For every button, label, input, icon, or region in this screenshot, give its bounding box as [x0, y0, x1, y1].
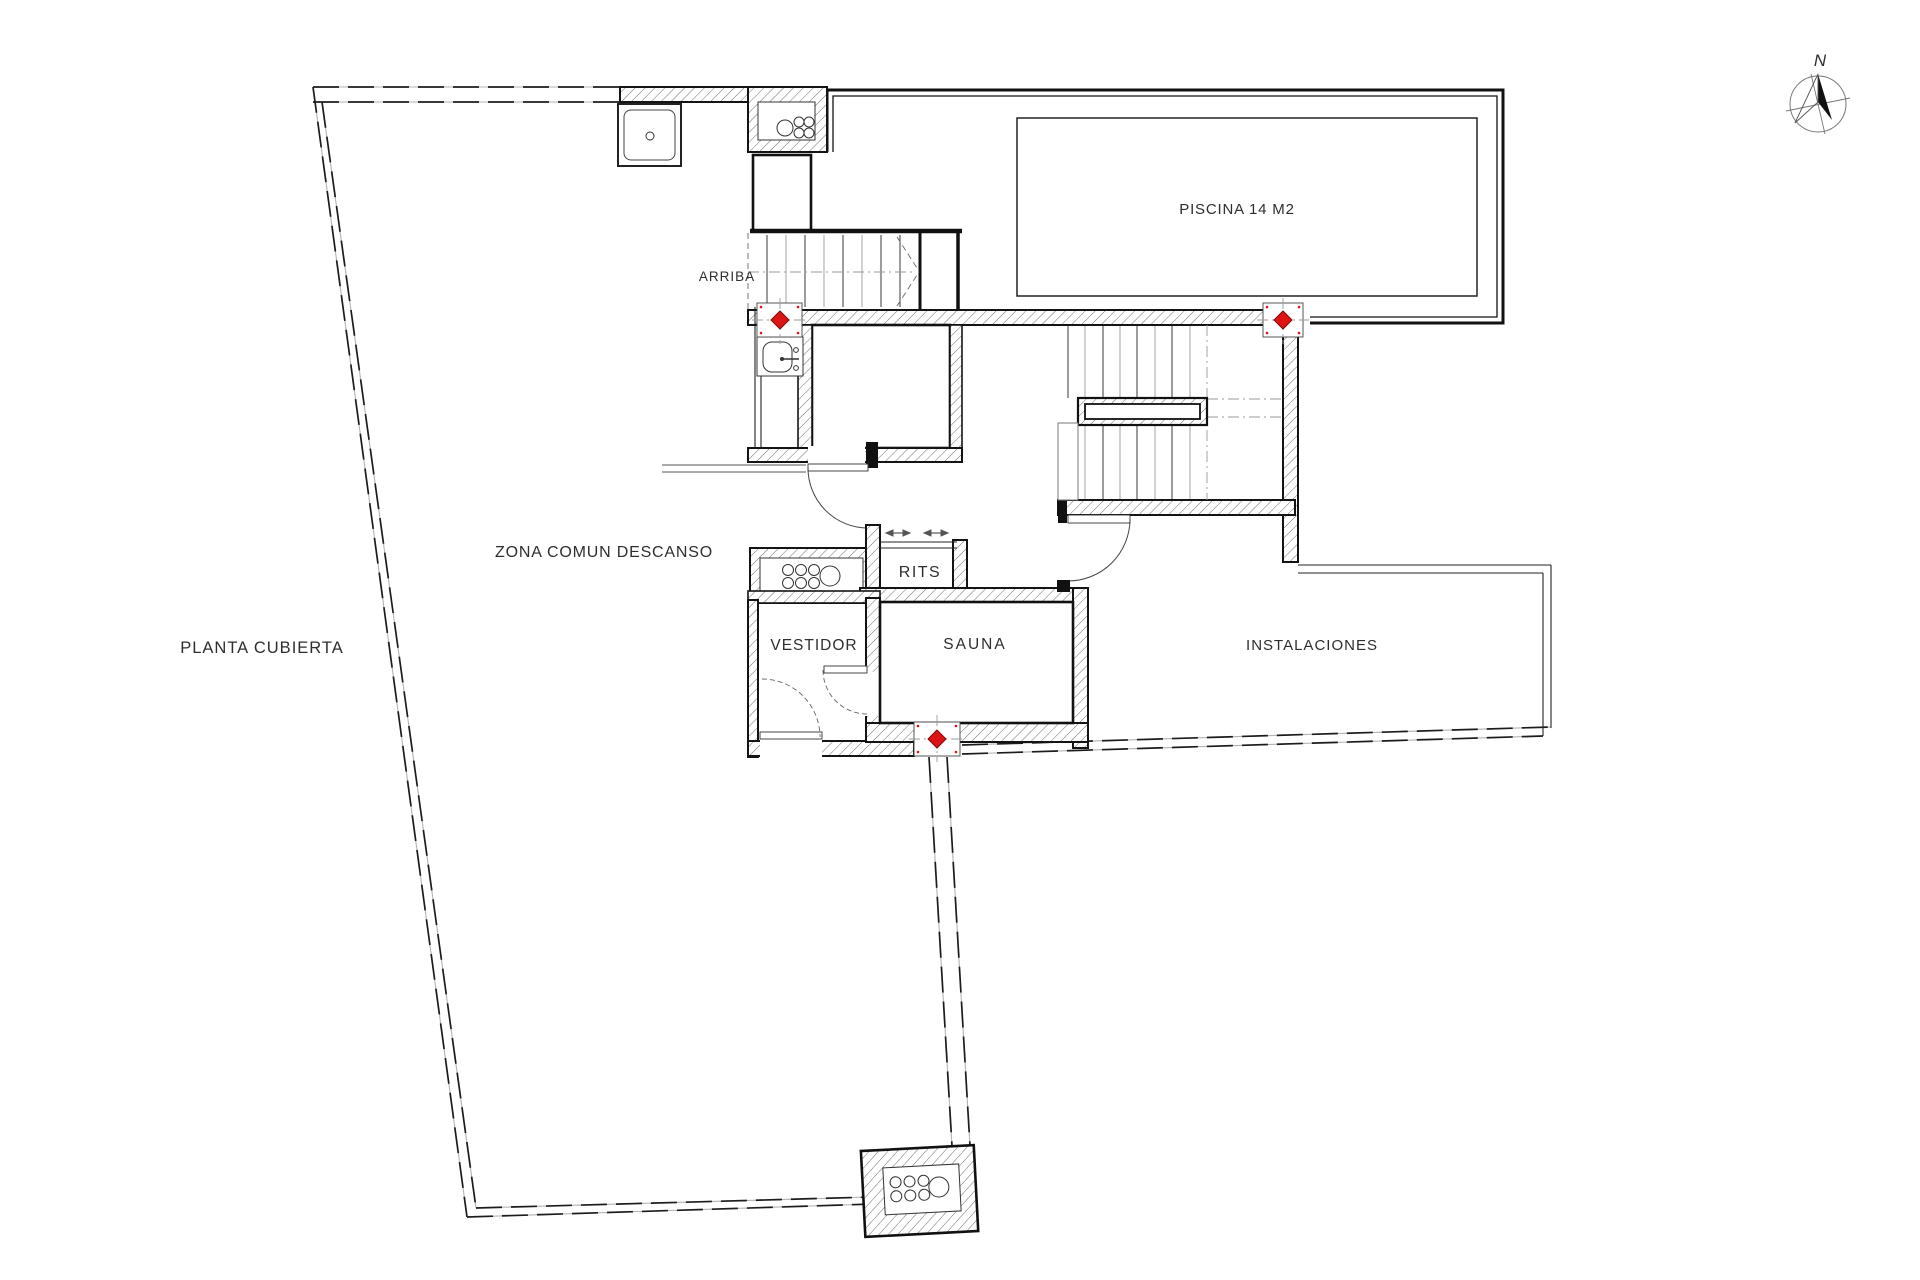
door-swing-arc [808, 468, 868, 528]
marker-red-diamond [752, 298, 808, 344]
chimney-fixture [861, 1145, 978, 1237]
shaft-top-room [753, 155, 811, 231]
drain-icon [646, 132, 654, 140]
stair-label-arriba: ARRIBA [699, 269, 755, 284]
room-label-instalaciones: INSTALACIONES [1246, 637, 1378, 654]
sauna-interior [880, 602, 1073, 723]
corridor-boundary [929, 727, 1551, 1146]
door-leaf [808, 464, 868, 471]
pipe-icon [777, 120, 793, 136]
floor-title: PLANTA CUBIERTA [180, 639, 344, 657]
room-label-sauna: SAUNA [943, 636, 1006, 653]
door-swing-arc [823, 670, 867, 714]
north-label: N [1814, 51, 1827, 70]
floor-plan-drawing: N PLANTA CUBIERTA ZONA COMUN DESCANSO PI… [0, 0, 1920, 1280]
shaft-rooms [662, 307, 962, 528]
compass-rose: N [1786, 51, 1850, 134]
marker-red-diamond [909, 715, 965, 762]
room-label-vestidor: VESTIDOR [770, 637, 857, 654]
elevator-shaft-room [812, 325, 950, 448]
door-leaf [824, 666, 867, 673]
skylight [618, 104, 681, 166]
pipe-icon [928, 1176, 949, 1197]
room-label-rits: RITS [899, 564, 941, 581]
main-stairwell [1058, 325, 1298, 581]
pool-enclosure [827, 90, 1503, 323]
floor-plan-sheet: N PLANTA CUBIERTA ZONA COMUN DESCANSO PI… [0, 0, 1920, 1280]
room-label-piscina: PISCINA 14 M2 [1179, 201, 1294, 218]
pipe-icon [820, 566, 840, 586]
room-label-zona-comun: ZONA COMUN DESCANSO [495, 544, 713, 561]
door-swing-arc [1068, 519, 1130, 581]
sliding-door-arrow [886, 530, 948, 536]
door-swing-arc [762, 679, 820, 737]
door-leaf [1068, 515, 1130, 523]
wall-band-middle [748, 310, 1267, 325]
marker-red-diamond [1257, 298, 1309, 344]
door-leaf [760, 732, 822, 739]
sauna-room [866, 580, 1088, 748]
